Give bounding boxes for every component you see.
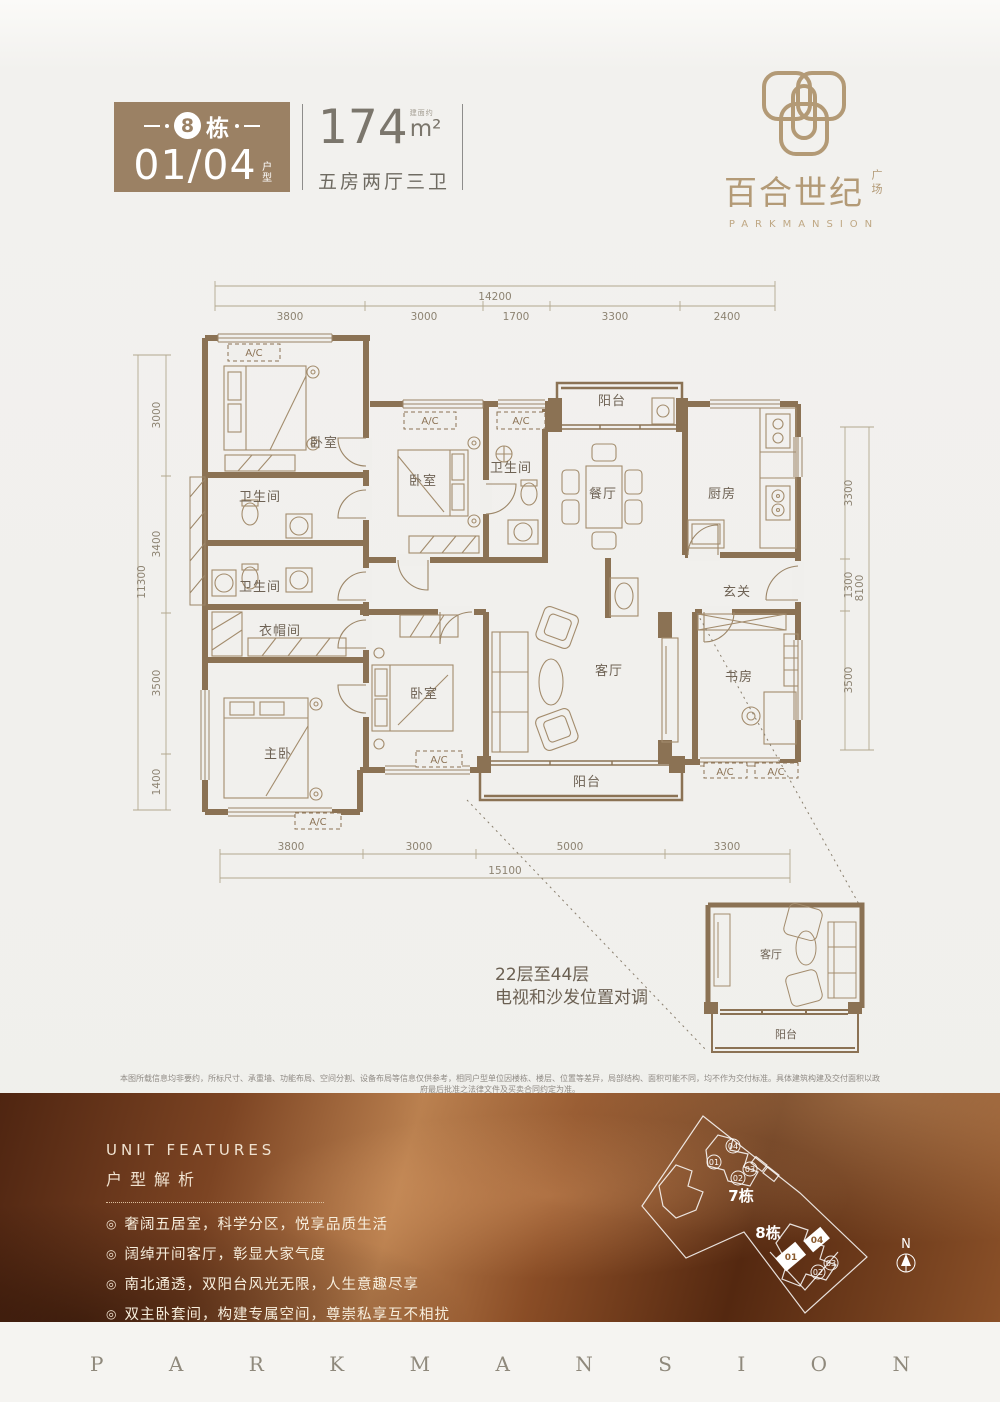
brand-name-suffix: 广场	[868, 169, 884, 197]
room-label-balcony: 阳台	[573, 775, 601, 790]
sliding-doors	[490, 425, 679, 765]
room-layout-label: 五房两厅三卫	[318, 167, 456, 194]
inset-note-line1: 22层至44层	[495, 965, 589, 985]
badge-deco-line	[244, 125, 260, 127]
features-title-en: UNIT FEATURES	[106, 1141, 450, 1159]
svg-text:3300: 3300	[843, 480, 855, 507]
room-label-entry: 玄关	[723, 585, 751, 600]
inset-living-label: 客厅	[760, 947, 782, 961]
bullet-icon: ◎	[106, 1247, 116, 1261]
dimension-labels: 14200 3800 3000 1700 3300 2400 3800 3000…	[136, 291, 866, 877]
room-label-kitchen: 厨房	[708, 486, 736, 502]
feature-item: ◎ 双主卧套间，构建专属空间，尊崇私享互不相扰	[106, 1303, 450, 1324]
svg-text:3800: 3800	[278, 841, 305, 853]
area-value: 174	[318, 104, 408, 151]
area-block: 174 建面约 m² 五房两厅三卫	[318, 104, 456, 194]
room-label-cloakroom: 衣帽间	[259, 623, 301, 639]
svg-text:3300: 3300	[602, 311, 629, 323]
inset-note: 22层至44层 电视和沙发位置对调	[495, 965, 648, 1008]
inset-note-line2: 电视和沙发位置对调	[495, 988, 648, 1008]
svg-text:3300: 3300	[714, 841, 741, 853]
dim-total-top: 14200	[478, 291, 511, 303]
badge-building-row: 8 栋	[144, 109, 260, 143]
svg-text:1400: 1400	[151, 769, 163, 796]
doors	[338, 438, 804, 717]
bullet-icon: ◎	[106, 1307, 116, 1321]
plan-walls	[205, 338, 798, 812]
ac-label: A/C	[512, 416, 529, 427]
unit-type-label: 户型	[260, 161, 271, 183]
room-label-bath: 卫生间	[490, 461, 532, 476]
plan-piers	[477, 398, 688, 773]
badge-unit-row: 01/04 户型	[133, 145, 270, 186]
disclaimer-text: 本图所载信息均非要约，所标尺寸、承重墙、功能布局、空间分割、设备布局等信息仅供参…	[120, 1073, 880, 1095]
building-label: 栋	[206, 109, 230, 143]
svg-text:5000: 5000	[557, 841, 584, 853]
room-label-master: 主卧	[264, 747, 292, 762]
brand-name-cn: 百合世纪	[724, 166, 864, 214]
svg-text:3500: 3500	[151, 670, 163, 697]
svg-text:1300: 1300	[843, 572, 855, 599]
brand-logo: 百合世纪 广场 PARKMANSION	[698, 68, 910, 230]
room-label-bedroom: 卧室	[409, 473, 437, 489]
features-divider	[106, 1202, 324, 1203]
room-label-study: 书房	[725, 669, 753, 685]
ac-label: A/C	[430, 755, 447, 766]
footer-strip: PARKMANSION	[0, 1322, 1000, 1402]
svg-text:3800: 3800	[277, 311, 304, 323]
footer-brand-wordmark: PARKMANSION	[90, 1352, 910, 1376]
bullet-icon: ◎	[106, 1277, 116, 1291]
building-number-circle: 8	[174, 112, 201, 139]
svg-text:1700: 1700	[503, 311, 530, 323]
unit-features-panel: UNIT FEATURES 户型解析 ◎ 奢阔五居室，科学分区，悦享品质生活 ◎…	[106, 1141, 450, 1324]
building-number: 8	[181, 115, 194, 137]
floorplan-poster: 8 栋 01/04 户型 174 建面约 m² 五房两厅三卫	[0, 0, 1000, 1402]
room-label-dining: 餐厅	[589, 486, 617, 502]
badge-deco-line	[144, 125, 160, 127]
inset-balcony-label: 阳台	[775, 1027, 797, 1041]
room-labels: 卧室 卫生间 卫生间 衣帽间 主卧 卧室 卫生间 阳台 餐厅 厨房 玄关 书房 …	[239, 394, 753, 790]
room-label-bedroom: 卧室	[310, 435, 338, 451]
brand-name-en: PARKMANSION	[698, 219, 910, 230]
dim-total-left: 11300	[136, 565, 148, 598]
header-divider	[302, 104, 303, 190]
dim-total-right: 8100	[854, 575, 866, 602]
svg-text:3000: 3000	[411, 311, 438, 323]
unit-badge: 8 栋 01/04 户型	[114, 102, 290, 192]
furniture	[212, 366, 798, 800]
svg-text:3400: 3400	[151, 531, 163, 558]
feature-item: ◎ 阔绰开间客厅，彰显大家气度	[106, 1243, 450, 1264]
ac-label: A/C	[309, 817, 326, 828]
area-unit: m²	[410, 118, 442, 141]
ac-label: A/C	[767, 767, 784, 778]
unit-code: 01/04	[133, 145, 256, 186]
svg-text:2400: 2400	[714, 311, 741, 323]
duct-shaft	[190, 477, 205, 605]
bullet-icon: ◎	[106, 1217, 116, 1231]
room-label-balcony: 阳台	[598, 394, 626, 409]
header-divider	[462, 104, 463, 190]
feature-item: ◎ 奢阔五居室，科学分区，悦享品质生活	[106, 1213, 450, 1234]
room-label-bath: 卫生间	[239, 580, 281, 595]
room-label-bath: 卫生间	[239, 490, 281, 505]
balcony-walls	[480, 383, 682, 800]
room-label-bedroom: 卧室	[410, 686, 438, 702]
svg-text:3000: 3000	[151, 402, 163, 429]
brand-emblem-icon	[752, 68, 856, 160]
svg-text:3000: 3000	[406, 841, 433, 853]
ac-label: A/C	[421, 416, 438, 427]
features-title-cn: 户型解析	[106, 1166, 450, 1190]
ac-label: A/C	[716, 767, 733, 778]
dimension-lines	[133, 281, 874, 883]
dim-total-bottom: 15100	[488, 865, 521, 877]
windows	[200, 333, 803, 817]
feature-item: ◎ 南北通透，双阳台风光无限，人生意趣尽享	[106, 1273, 450, 1294]
svg-text:3500: 3500	[843, 667, 855, 694]
badge-deco-dot	[235, 124, 239, 128]
inset-leader-lines	[467, 613, 860, 1051]
badge-deco-dot	[165, 124, 169, 128]
ac-units: A/C A/C A/C A/C A/C A/C A/C	[228, 344, 798, 829]
ac-label: A/C	[245, 348, 262, 359]
inset-plan: 客厅 阳台	[704, 902, 862, 1052]
room-label-living: 客厅	[595, 663, 623, 679]
